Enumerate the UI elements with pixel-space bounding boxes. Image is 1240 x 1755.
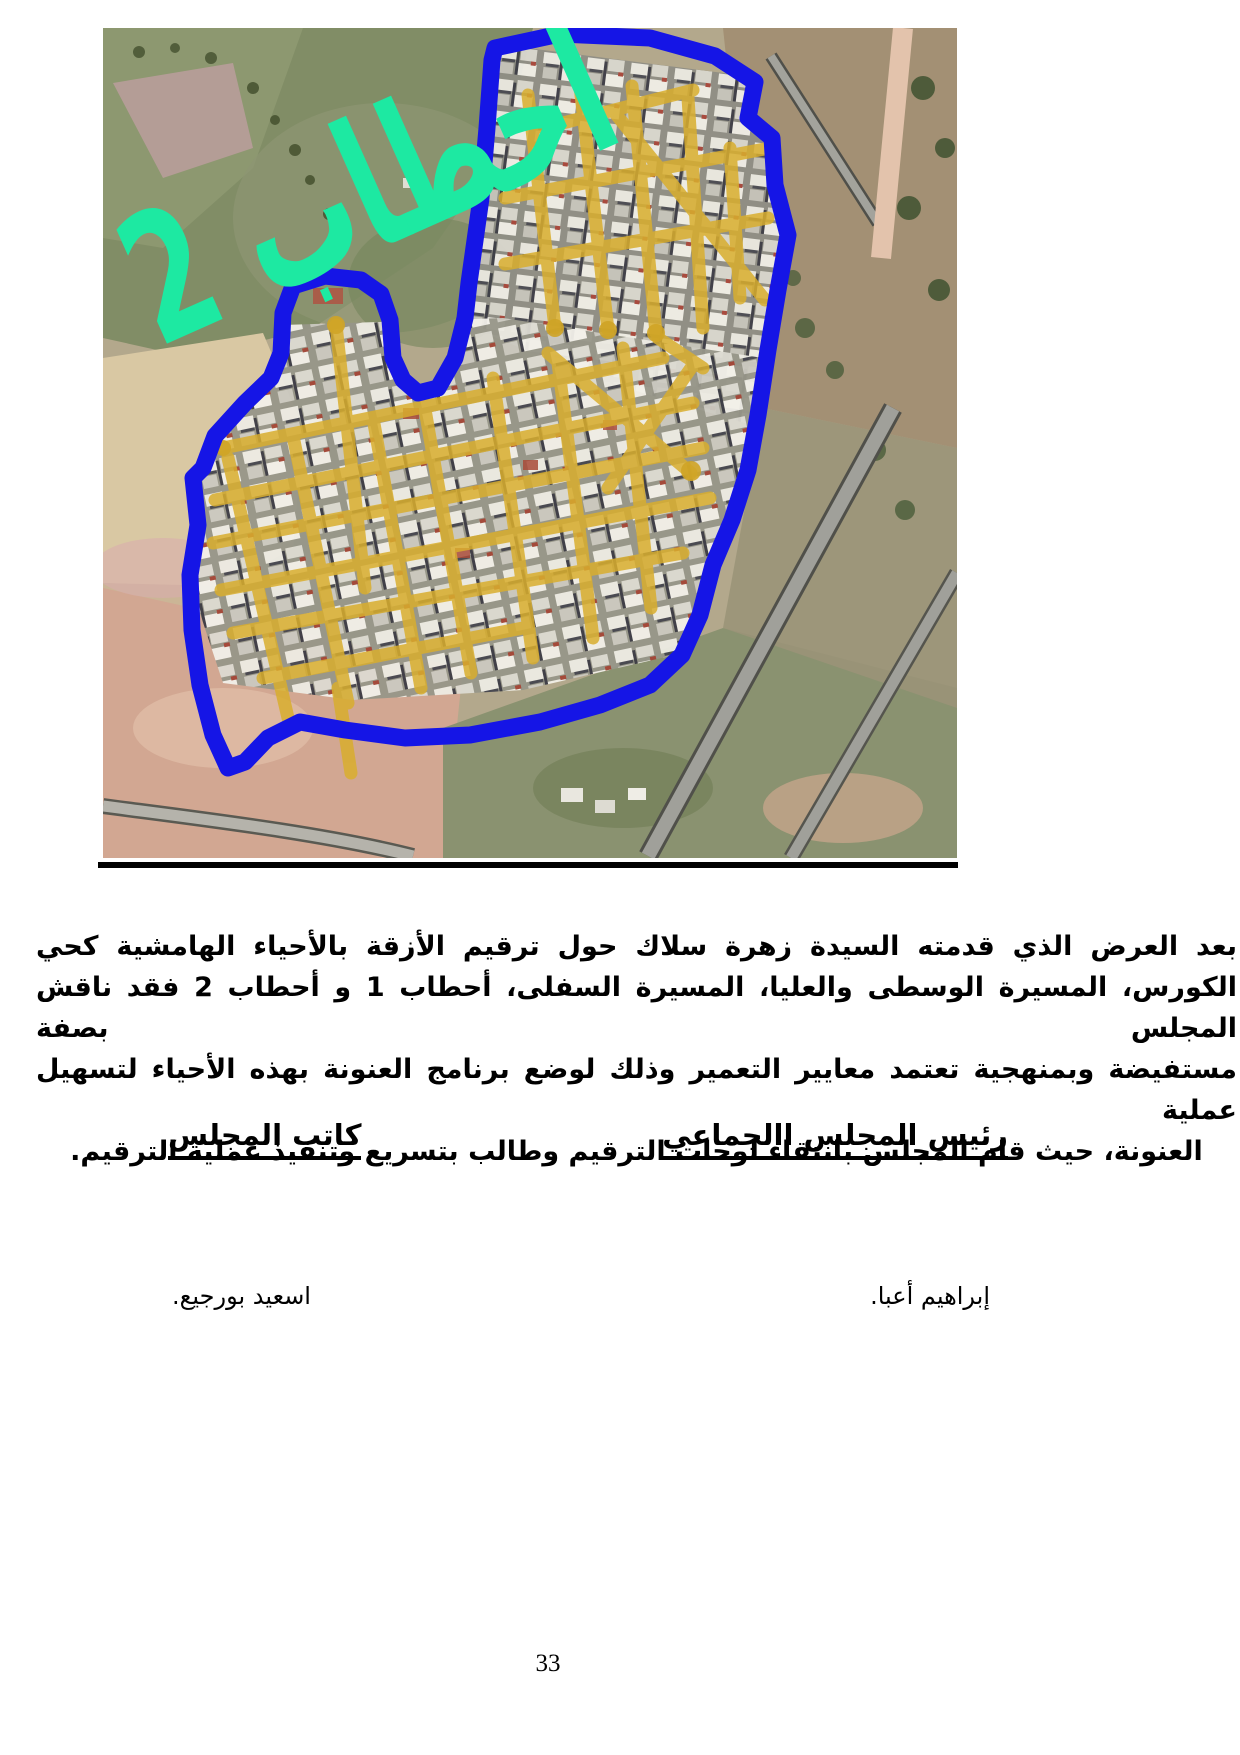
figure-underline bbox=[98, 862, 958, 868]
signature-name-president: إبراهيم أعبا. bbox=[870, 1282, 990, 1310]
signature-title-secretary: كاتب المجلس bbox=[168, 1118, 361, 1160]
satellite-map: احطاب 2 bbox=[103, 28, 957, 858]
page-number: 33 bbox=[0, 1650, 1096, 1678]
signature-title-president: رئيس المجلس االجماعي bbox=[662, 1118, 1008, 1160]
document-page: احطاب 2 بعد العرض الذي قدمته السيدة زهرة… bbox=[0, 0, 1240, 1755]
signature-name-secretary: اسعيد بورجيع. bbox=[172, 1282, 311, 1310]
paragraph-line: الكورس، المسيرة الوسطى والعليا، المسيرة … bbox=[36, 967, 1237, 1049]
satellite-map-figure: احطاب 2 bbox=[103, 28, 957, 858]
paragraph-line: بعد العرض الذي قدمته السيدة زهرة سلاك حو… bbox=[36, 926, 1237, 967]
